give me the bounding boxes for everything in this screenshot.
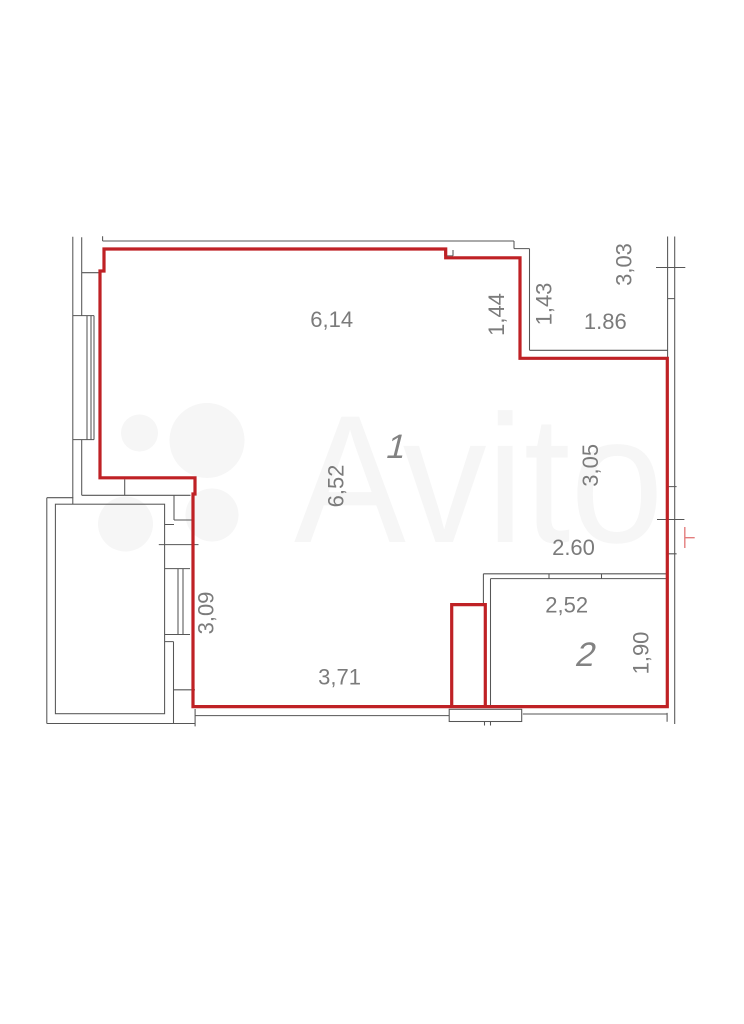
svg-text:6,14: 6,14 xyxy=(310,307,353,332)
svg-text:2: 2 xyxy=(572,636,600,673)
svg-text:3,09: 3,09 xyxy=(194,592,219,635)
svg-text:3,05: 3,05 xyxy=(578,444,603,487)
svg-text:2,52: 2,52 xyxy=(545,593,588,618)
svg-text:Avito: Avito xyxy=(294,379,664,582)
svg-text:1,43: 1,43 xyxy=(532,283,557,326)
svg-text:1.86: 1.86 xyxy=(584,309,627,334)
svg-text:2.60: 2.60 xyxy=(552,535,595,560)
svg-text:1,44: 1,44 xyxy=(484,293,509,336)
svg-text:3,03: 3,03 xyxy=(612,243,637,286)
svg-text:6,52: 6,52 xyxy=(324,465,349,508)
svg-text:1,90: 1,90 xyxy=(629,632,654,675)
svg-text:3,71: 3,71 xyxy=(318,665,361,690)
